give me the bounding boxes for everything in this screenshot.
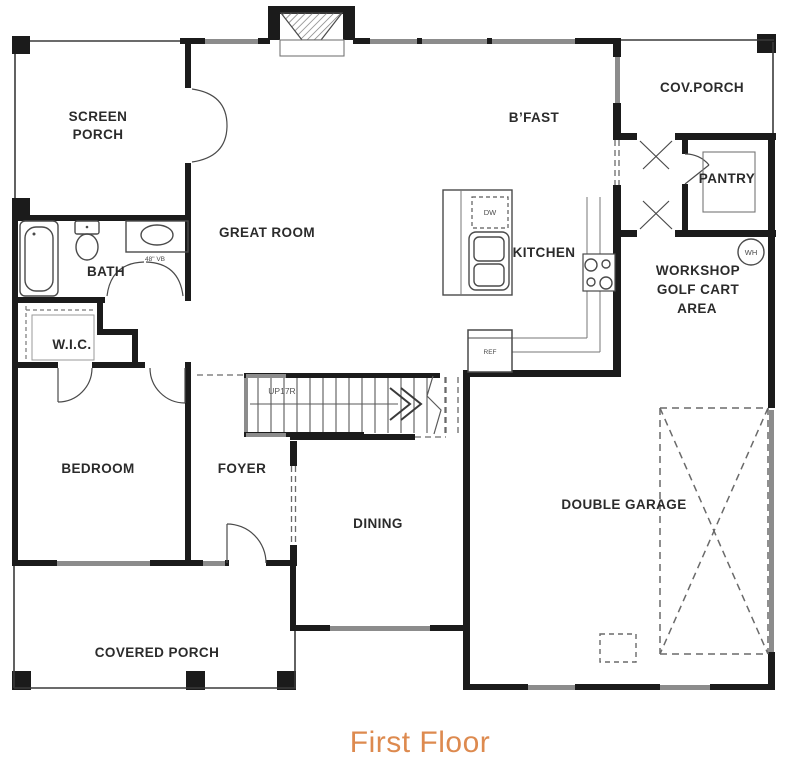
doors (58, 89, 709, 563)
kitchen-counter (512, 197, 615, 352)
garage-door (769, 410, 774, 652)
fireplace-icon (280, 13, 344, 56)
windows (57, 39, 774, 690)
great-room-label: GREAT ROOM (219, 225, 315, 240)
cooktop-icon (583, 254, 615, 291)
breakfast-label: B’FAST (509, 110, 560, 125)
floor-plan: UP17R 48" VB DW (0, 0, 785, 768)
garage-label: DOUBLE GARAGE (561, 497, 686, 512)
stairs-label: UP17R (268, 386, 295, 396)
floor-plan-page: UP17R 48" VB DW (0, 0, 785, 768)
vanity-label: 48" VB (145, 256, 165, 263)
foyer-label: FOYER (218, 461, 267, 476)
vanity-sink-icon (126, 221, 188, 252)
water-heater-label: WH (745, 248, 758, 257)
wic-label: W.I.C. (52, 337, 91, 352)
screen-porch-label-1: SCREEN (69, 109, 128, 124)
workshop-label-2: GOLF CART (657, 282, 740, 297)
covered-porch-label: COVERED PORCH (95, 645, 219, 660)
workshop-label-1: WORKSHOP (656, 263, 740, 278)
kitchen-label: KITCHEN (513, 245, 576, 260)
bathtub-icon (20, 221, 58, 296)
garage-parking-marks (600, 408, 768, 662)
room-labels: SCREEN PORCH GREAT ROOM B’FAST COV.PORCH… (52, 80, 755, 660)
front-door-arc (227, 524, 266, 563)
refrigerator-label: REF (484, 349, 497, 356)
workshop-label-3: AREA (677, 301, 717, 316)
floor-caption: First Floor (350, 726, 491, 759)
stairs: UP17R (250, 376, 445, 434)
french-door-arc (192, 89, 227, 126)
pantry-label: PANTRY (699, 171, 755, 186)
kitchen-sink-icon (469, 232, 509, 290)
bedroom-label: BEDROOM (61, 461, 134, 476)
kitchen-island (443, 190, 512, 295)
toilet-icon (75, 221, 99, 260)
dining-label: DINING (353, 516, 403, 531)
cased-openings (197, 140, 619, 545)
stair-break-line (427, 376, 441, 434)
dishwasher-label: DW (484, 208, 497, 217)
cov-porch-label: COV.PORCH (660, 80, 744, 95)
bath-label: BATH (87, 264, 125, 279)
garage-utility-pad (600, 634, 636, 662)
screen-porch-label-2: PORCH (73, 127, 124, 142)
